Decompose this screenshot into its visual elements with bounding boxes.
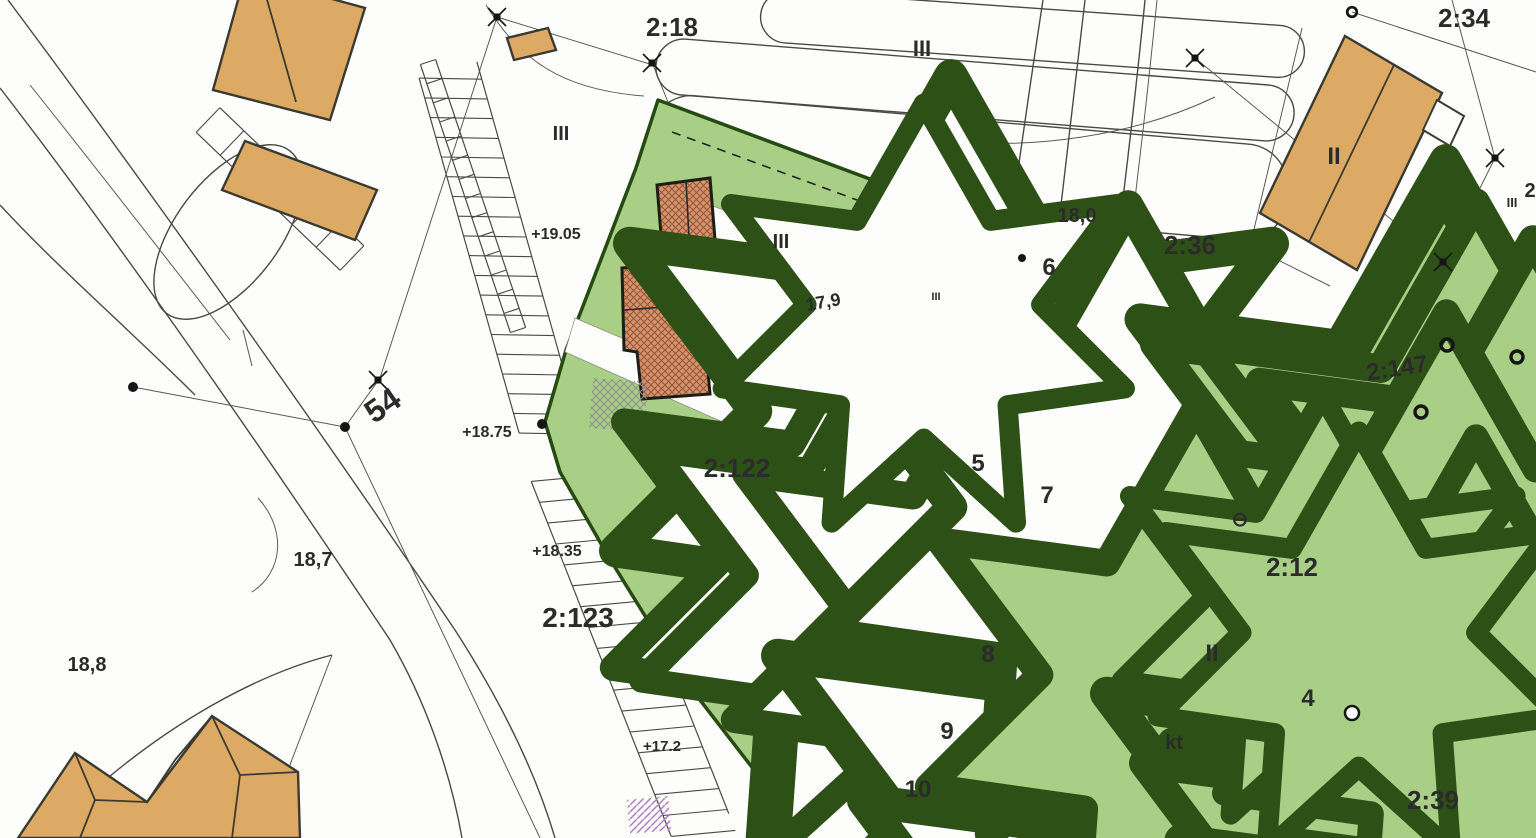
label-storeys-III: III <box>913 36 931 61</box>
label-parcel-2-12: 2:12 <box>1266 552 1318 582</box>
label-kt: kt <box>1165 732 1183 754</box>
label-storeys-II: II <box>1205 640 1218 667</box>
label-parcel-2-36: 2:36 <box>1164 230 1216 260</box>
label-number-6: 6 <box>1042 254 1055 281</box>
building-southwest-zigzag <box>18 716 300 838</box>
building-northwest-lower <box>222 141 377 240</box>
label-parcel-2-34: 2:34 <box>1438 3 1491 33</box>
label-elevation-18-35: +18.35 <box>532 543 581 560</box>
label-elevation-18-75: +18.75 <box>462 424 511 441</box>
stair-hatch-strip <box>420 60 525 333</box>
label-number-10: 10 <box>905 776 932 803</box>
label-elevation-18-0: 18,0 <box>1058 205 1097 227</box>
label-elevation-18-8: 18,8 <box>68 654 107 676</box>
label-number-4: 4 <box>1301 685 1315 712</box>
label-storeys-III: III <box>773 231 790 253</box>
building-small-top <box>507 28 556 60</box>
label-parcel-2-123: 2:123 <box>542 602 614 633</box>
map-canvas: 2:18 III 2:34 II 2 III 2:36 18,0 6 III +… <box>0 0 1536 838</box>
label-storeys-II: II <box>1327 143 1340 170</box>
label-parcel-2-18: 2:18 <box>646 12 698 42</box>
label-number-5: 5 <box>971 450 984 477</box>
label-storeys-III-small: III <box>1507 195 1518 210</box>
label-number-9: 9 <box>940 718 953 745</box>
label-gray-54: 54 <box>358 380 408 430</box>
label-elevation-17-2: +17.2 <box>643 738 681 755</box>
left-road-lines <box>0 0 555 838</box>
label-storeys-III-red: III <box>931 291 940 303</box>
label-elevation-19-05: +19.05 <box>531 226 580 243</box>
label-parcel-partial: 2 <box>1524 180 1535 202</box>
label-parcel-2-122: 2:122 <box>704 453 771 483</box>
label-elevation-18-7: 18,7 <box>294 549 333 571</box>
label-number-8: 8 <box>981 641 994 668</box>
building-northwest-upper <box>213 0 365 120</box>
label-storeys-III: III <box>553 123 570 145</box>
cadastral-map: 2:18 III 2:34 II 2 III 2:36 18,0 6 III +… <box>0 0 1536 838</box>
label-theta-symbol: ⊖ <box>1232 509 1249 531</box>
label-parcel-2-39: 2:39 <box>1407 785 1459 815</box>
label-number-7: 7 <box>1040 482 1053 509</box>
